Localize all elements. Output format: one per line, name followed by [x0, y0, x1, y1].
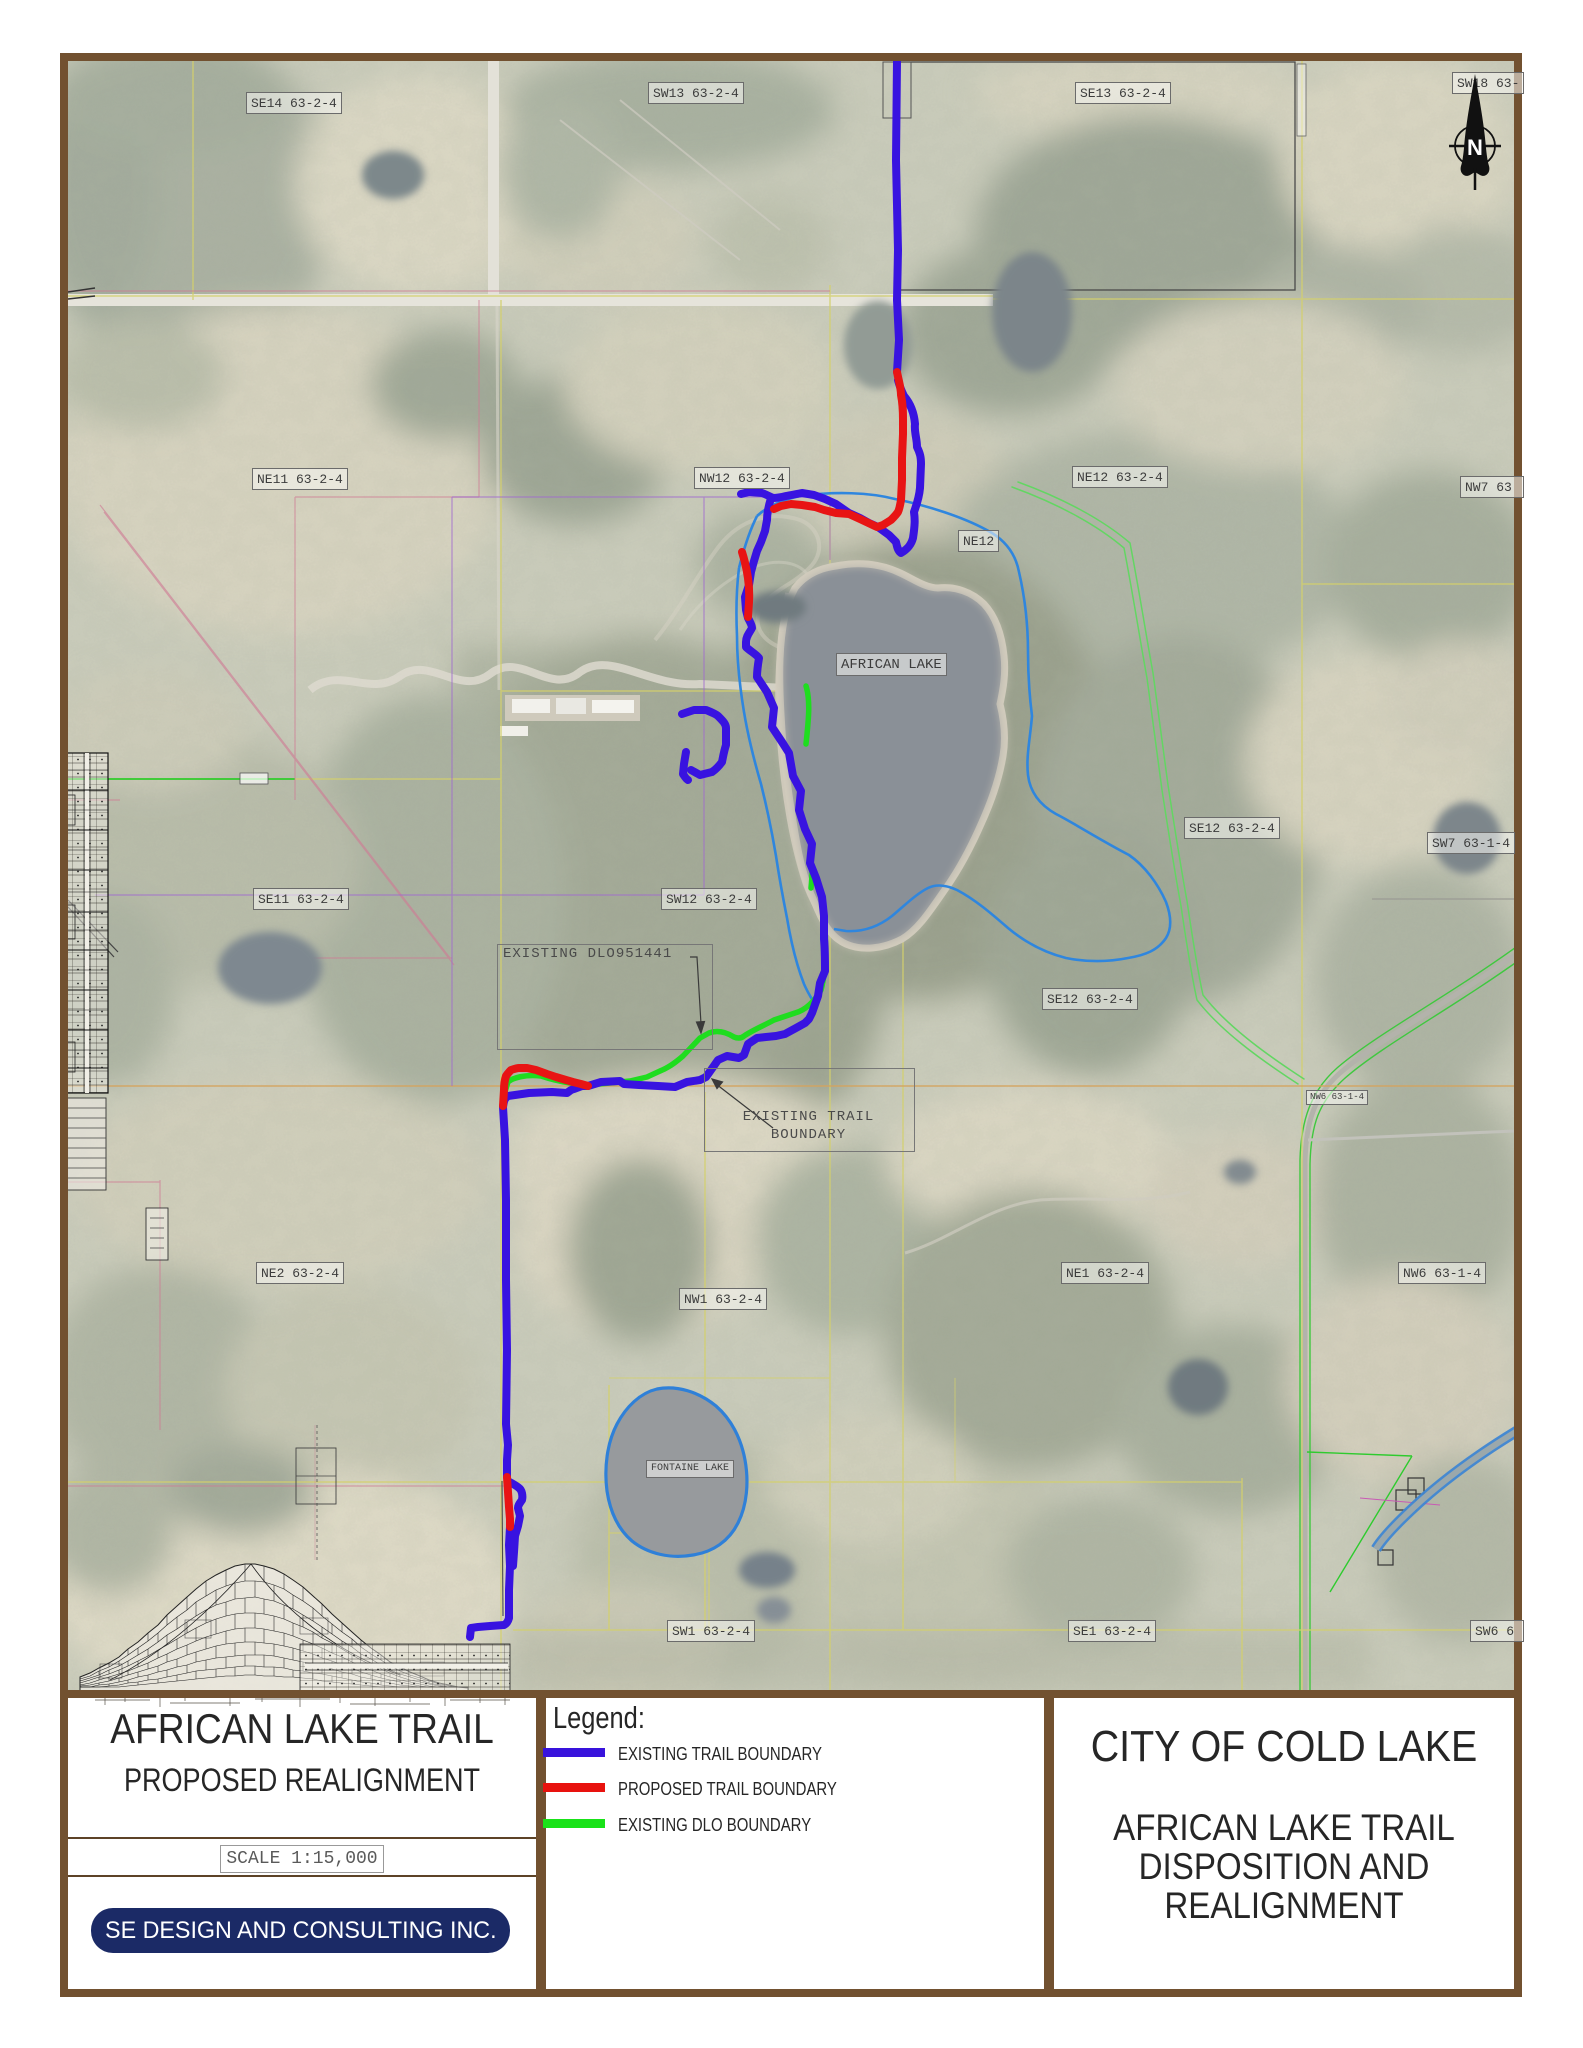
- svg-text:N: N: [1467, 135, 1483, 160]
